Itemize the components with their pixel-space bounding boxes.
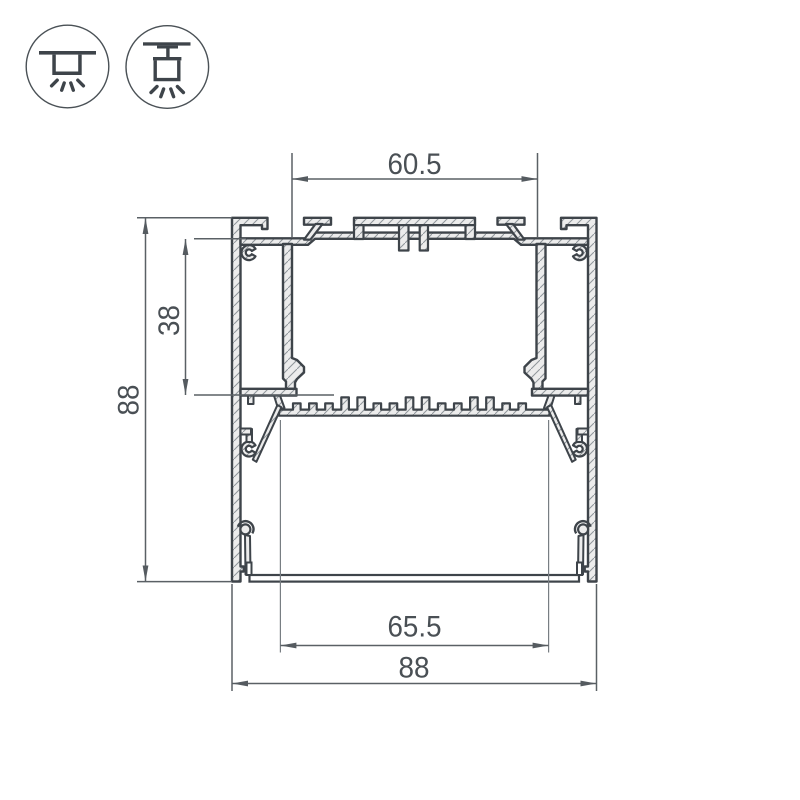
svg-text:60.5: 60.5: [388, 148, 442, 181]
svg-text:88: 88: [113, 385, 146, 416]
svg-text:65.5: 65.5: [388, 611, 442, 644]
svg-text:38: 38: [153, 305, 186, 336]
svg-text:88: 88: [399, 652, 430, 685]
